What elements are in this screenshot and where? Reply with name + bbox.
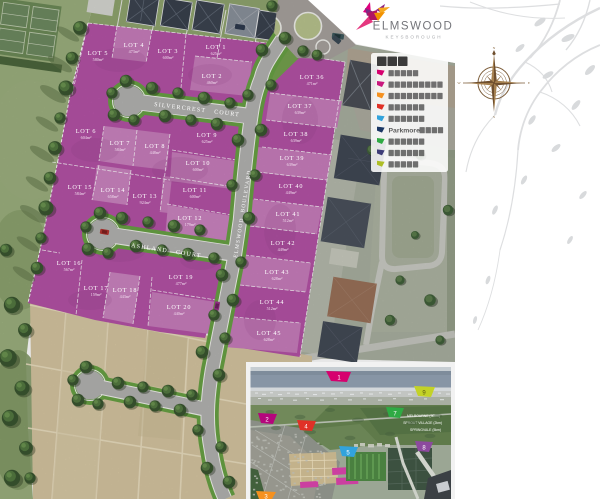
svg-text:LOT 15: LOT 15 xyxy=(68,184,92,191)
svg-text:LOT 4: LOT 4 xyxy=(124,42,145,49)
svg-text:584m²: 584m² xyxy=(75,191,87,196)
svg-text:SPRINGVALE (5km): SPRINGVALE (5km) xyxy=(410,428,441,432)
svg-text:LOT 6: LOT 6 xyxy=(76,128,97,135)
svg-text:584m²: 584m² xyxy=(115,147,127,152)
svg-text:567m²: 567m² xyxy=(64,267,76,272)
svg-text:625m²: 625m² xyxy=(211,51,223,56)
svg-text:Parkmore: Parkmore xyxy=(389,127,421,134)
svg-text:449m²: 449m² xyxy=(278,247,290,252)
svg-text:LOT 18: LOT 18 xyxy=(113,287,137,294)
svg-text:512m²: 512m² xyxy=(267,306,279,311)
svg-text:440m²: 440m² xyxy=(174,311,186,316)
svg-text:LOT 2: LOT 2 xyxy=(202,73,223,80)
svg-text:477m²: 477m² xyxy=(176,281,188,286)
svg-text:LOT 13: LOT 13 xyxy=(133,193,157,200)
svg-text:639m²: 639m² xyxy=(291,138,303,143)
svg-text:LOT 37: LOT 37 xyxy=(288,103,312,110)
svg-text:625m²: 625m² xyxy=(202,139,214,144)
svg-text:512m²: 512m² xyxy=(283,218,295,223)
svg-text:449m²: 449m² xyxy=(286,190,298,195)
svg-text:LOT 19: LOT 19 xyxy=(169,274,193,281)
svg-text:639m²: 639m² xyxy=(295,110,307,115)
svg-text:LOT 16: LOT 16 xyxy=(57,260,81,267)
svg-text:LOT 20: LOT 20 xyxy=(167,304,191,311)
svg-text:KEYSBOROUGH: KEYSBOROUGH xyxy=(386,35,443,40)
svg-text:LOT 9: LOT 9 xyxy=(197,132,218,139)
svg-text:604m²: 604m² xyxy=(81,135,93,140)
svg-text:600m²: 600m² xyxy=(163,55,175,60)
svg-text:179m²: 179m² xyxy=(185,222,197,227)
svg-text:600m²: 600m² xyxy=(193,167,205,172)
svg-text:LOT 3: LOT 3 xyxy=(158,48,179,55)
svg-text:LOT 42: LOT 42 xyxy=(271,240,295,247)
svg-text:LOT 5: LOT 5 xyxy=(88,50,109,57)
svg-text:LOT 7: LOT 7 xyxy=(110,140,131,147)
svg-text:ELMSWOOD: ELMSWOOD xyxy=(373,21,454,33)
svg-text:S: S xyxy=(493,115,495,119)
svg-text:628m²: 628m² xyxy=(272,276,284,281)
svg-text:473m²: 473m² xyxy=(129,49,141,54)
svg-text:LOT 17: LOT 17 xyxy=(84,285,108,292)
svg-text:LOT 43: LOT 43 xyxy=(265,269,289,276)
svg-text:639m²: 639m² xyxy=(287,162,299,167)
svg-text:600m²: 600m² xyxy=(190,194,202,199)
svg-text:LOT 40: LOT 40 xyxy=(279,183,303,190)
svg-text:LOT 39: LOT 39 xyxy=(280,155,304,162)
svg-text:471m²: 471m² xyxy=(307,81,319,86)
svg-text:580m²: 580m² xyxy=(93,57,105,62)
svg-text:LOT 38: LOT 38 xyxy=(284,131,308,138)
svg-text:448m²: 448m² xyxy=(150,150,162,155)
svg-text:LOT 11: LOT 11 xyxy=(183,187,207,194)
svg-text:LOT 8: LOT 8 xyxy=(145,143,166,150)
svg-text:159m²: 159m² xyxy=(91,292,103,297)
svg-text:924m²: 924m² xyxy=(140,200,152,205)
svg-text:E: E xyxy=(528,81,530,85)
svg-text:658m²: 658m² xyxy=(108,194,120,199)
svg-text:LOT 12: LOT 12 xyxy=(178,215,202,222)
svg-text:LOT 45: LOT 45 xyxy=(257,330,281,337)
svg-text:LOT 14: LOT 14 xyxy=(101,187,125,194)
svg-text:LOT 36: LOT 36 xyxy=(300,74,324,81)
svg-text:443m²: 443m² xyxy=(120,294,132,299)
svg-text:LOT 41: LOT 41 xyxy=(276,211,300,218)
svg-text:460m²: 460m² xyxy=(207,80,219,85)
svg-text:628m²: 628m² xyxy=(264,337,276,342)
svg-text:LOT 1: LOT 1 xyxy=(206,44,227,51)
svg-text:LOT 44: LOT 44 xyxy=(260,299,284,306)
svg-text:LOT 10: LOT 10 xyxy=(186,160,210,167)
